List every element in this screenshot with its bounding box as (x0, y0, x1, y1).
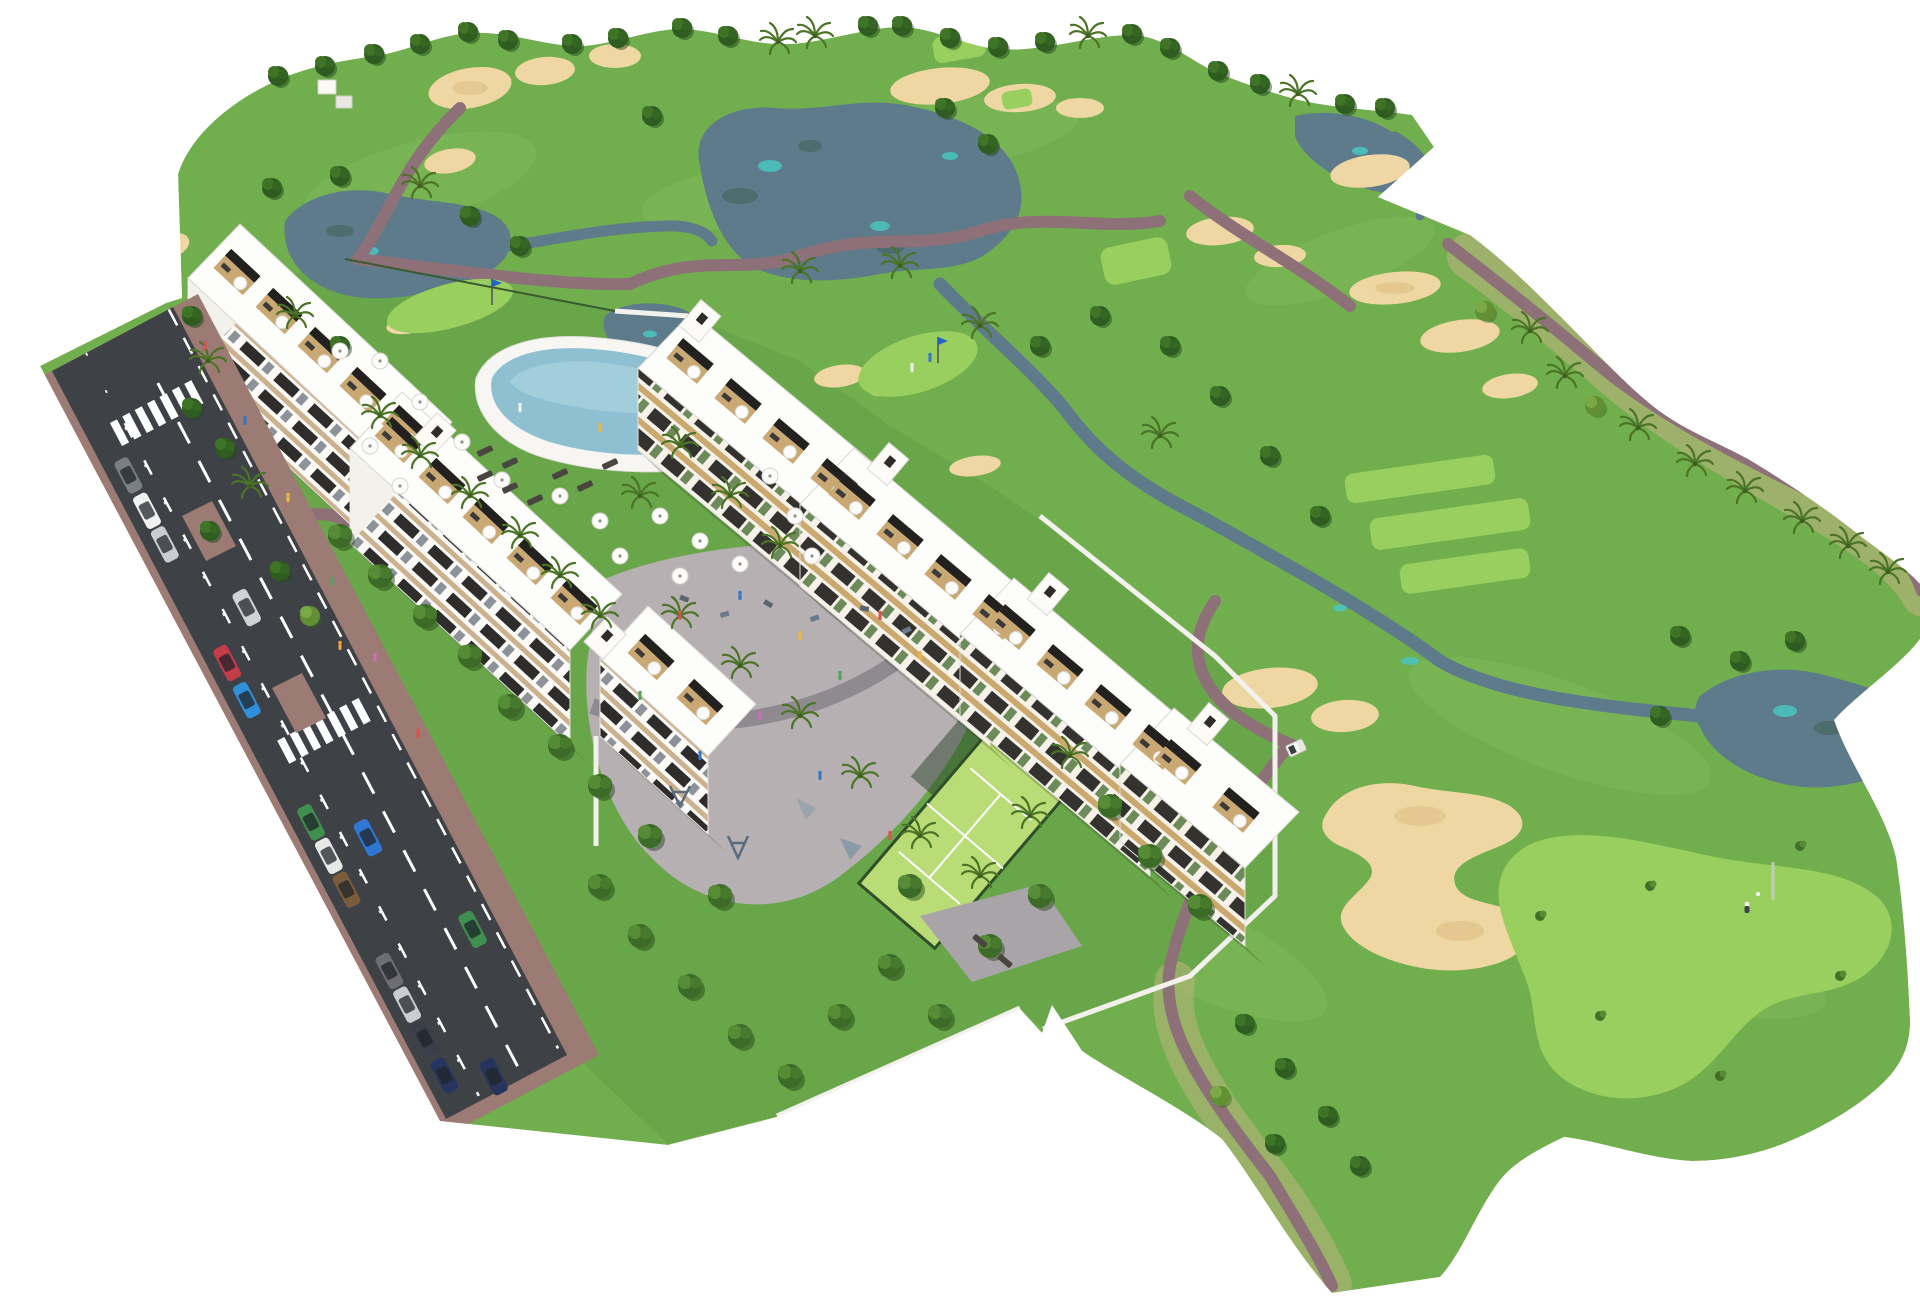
golfer (1745, 902, 1750, 913)
aerial-masterplan-render: Aerial 3D masterplan render of a residen… (40, 16, 1920, 1296)
render-canvas: Aerial 3D masterplan render of a residen… (40, 16, 1920, 1296)
